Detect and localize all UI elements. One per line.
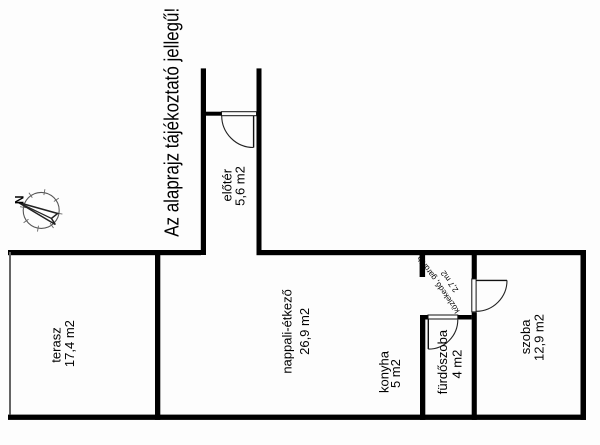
svg-text:4 m2: 4 m2: [450, 350, 465, 379]
svg-text:fürdőszoba: fürdőszoba: [435, 329, 450, 394]
svg-text:26,9 m2: 26,9 m2: [297, 308, 312, 355]
svg-text:12,9 m2: 12,9 m2: [532, 314, 547, 361]
svg-text:17,4 m2: 17,4 m2: [62, 320, 77, 367]
svg-text:5,6 m2: 5,6 m2: [233, 166, 248, 206]
svg-text:nappali-étkező: nappali-étkező: [279, 289, 294, 374]
svg-text:5 m2: 5 m2: [388, 359, 403, 388]
svg-text:N: N: [13, 195, 27, 204]
svg-text:Az alaprajz tájékoztató jelleg: Az alaprajz tájékoztató jellegű!: [160, 8, 183, 237]
